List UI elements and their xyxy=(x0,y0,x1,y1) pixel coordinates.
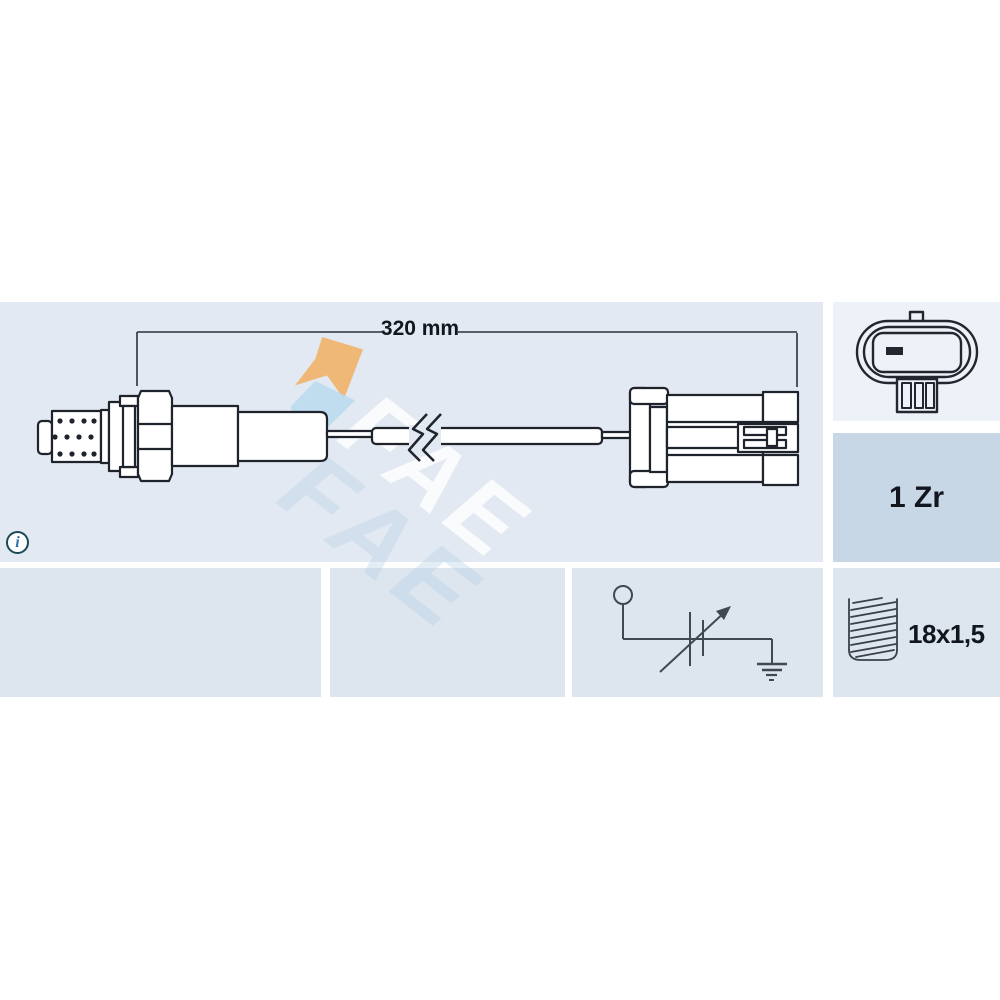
product-diagram-image: 1 Zr FAE FAE 320 mm 18x1,5 i xyxy=(0,0,1000,1000)
info-icon-glyph: i xyxy=(15,535,19,551)
sensor-type-panel: 1 Zr xyxy=(833,433,1000,562)
cable-length-label: 320 mm xyxy=(368,317,472,341)
sensor-type-label: 1 Zr xyxy=(889,481,944,515)
thread-size-label: 18x1,5 xyxy=(908,619,985,650)
schematic-panel xyxy=(572,568,823,697)
info-icon: i xyxy=(6,531,29,554)
connector-face-panel xyxy=(833,302,1000,421)
empty-panel-1 xyxy=(0,568,321,697)
